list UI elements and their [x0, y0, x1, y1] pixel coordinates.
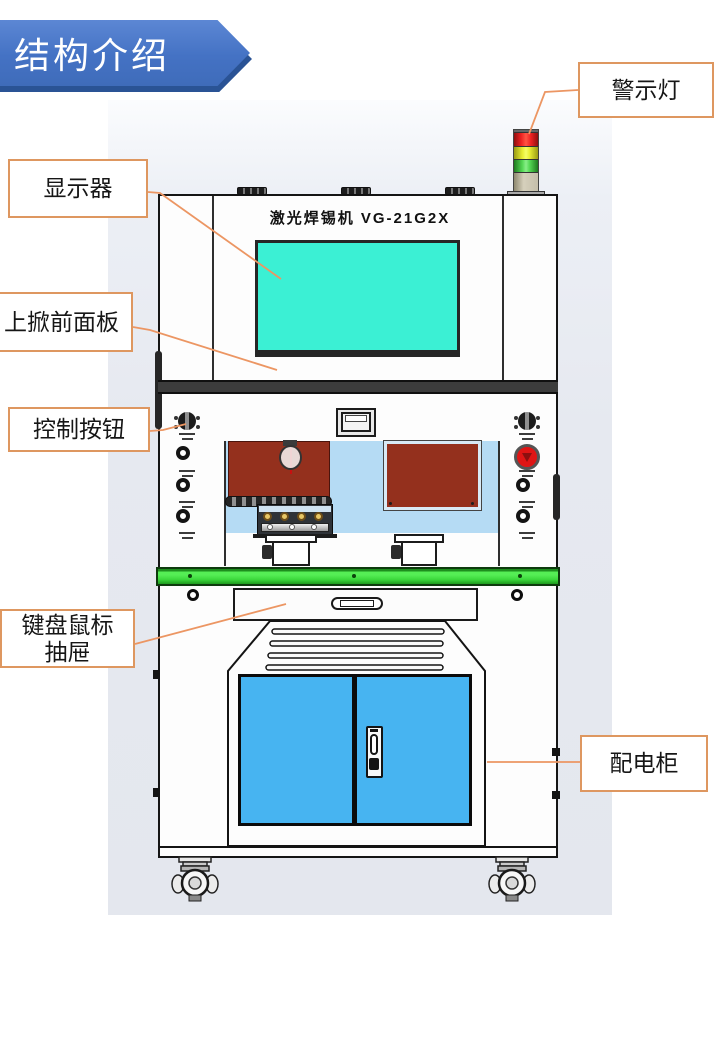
leader-line-keyboard-drawer [135, 604, 286, 644]
leader-line-control-buttons [150, 424, 186, 431]
callout-warning-light: 警示灯 [578, 62, 714, 118]
callout-power-cabinet-label: 配电柜 [610, 750, 679, 776]
callout-monitor-label: 显示器 [44, 175, 113, 201]
callout-control-buttons: 控制按钮 [8, 407, 150, 452]
callout-flip-panel-label: 上掀前面板 [4, 309, 119, 335]
callout-warning-light-label: 警示灯 [612, 77, 681, 103]
callout-drawer-label-line2: 抽屉 [45, 639, 91, 665]
leader-lines [0, 0, 720, 1040]
callout-flip-up-front-panel: 上掀前面板 [0, 292, 133, 352]
callout-control-buttons-label: 控制按钮 [33, 416, 125, 442]
callout-keyboard-mouse-drawer: 键盘鼠标 抽屉 [0, 609, 135, 668]
callout-power-distribution-cabinet: 配电柜 [580, 735, 708, 792]
callout-monitor: 显示器 [8, 159, 148, 218]
leader-line-warning-light [529, 90, 578, 134]
leader-line-monitor [148, 192, 281, 279]
callout-drawer-label-line1: 键盘鼠标 [22, 612, 114, 638]
leader-line-flip-panel [133, 327, 277, 370]
